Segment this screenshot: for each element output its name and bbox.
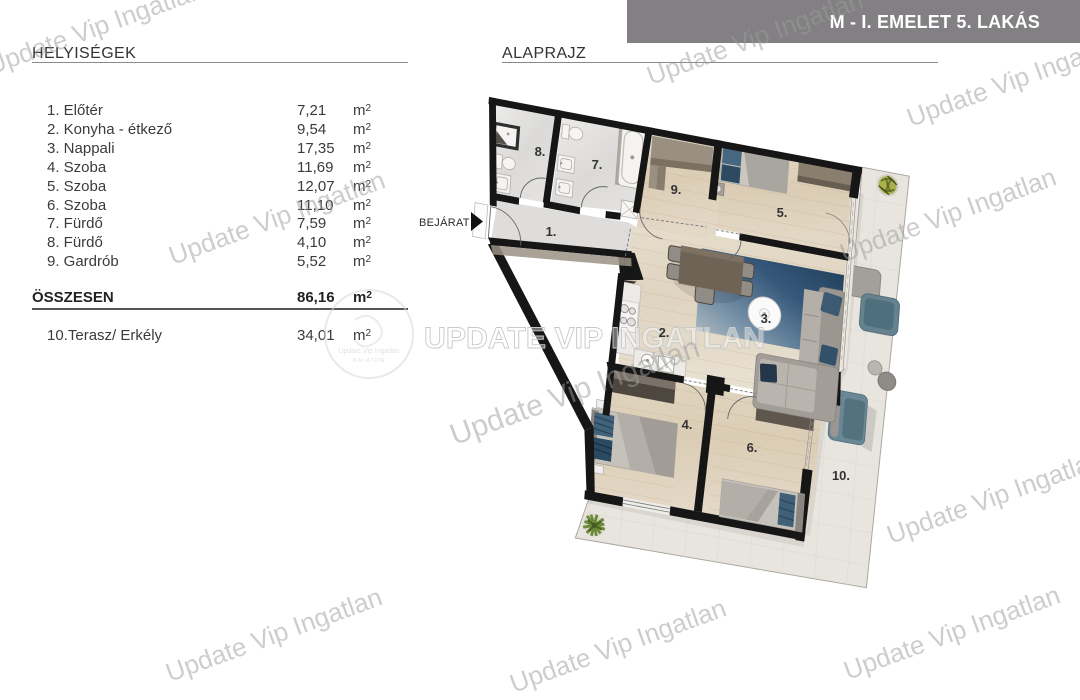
svg-text:8.: 8.: [535, 144, 546, 159]
svg-text:10.: 10.: [832, 468, 850, 483]
svg-text:2.: 2.: [659, 325, 670, 340]
svg-text:4.: 4.: [682, 417, 693, 432]
svg-text:Update Vip Ingatlan: Update Vip Ingatlan: [338, 348, 399, 355]
svg-text:1.: 1.: [546, 224, 557, 239]
svg-text:BALATON: BALATON: [353, 358, 385, 364]
svg-text:6.: 6.: [747, 440, 758, 455]
svg-text:7.: 7.: [592, 157, 603, 172]
svg-text:5.: 5.: [777, 205, 788, 220]
svg-text:9.: 9.: [671, 182, 682, 197]
svg-text:UPDATE VIP INGATLAN: UPDATE VIP INGATLAN: [424, 322, 765, 355]
svg-text:3.: 3.: [761, 311, 772, 326]
